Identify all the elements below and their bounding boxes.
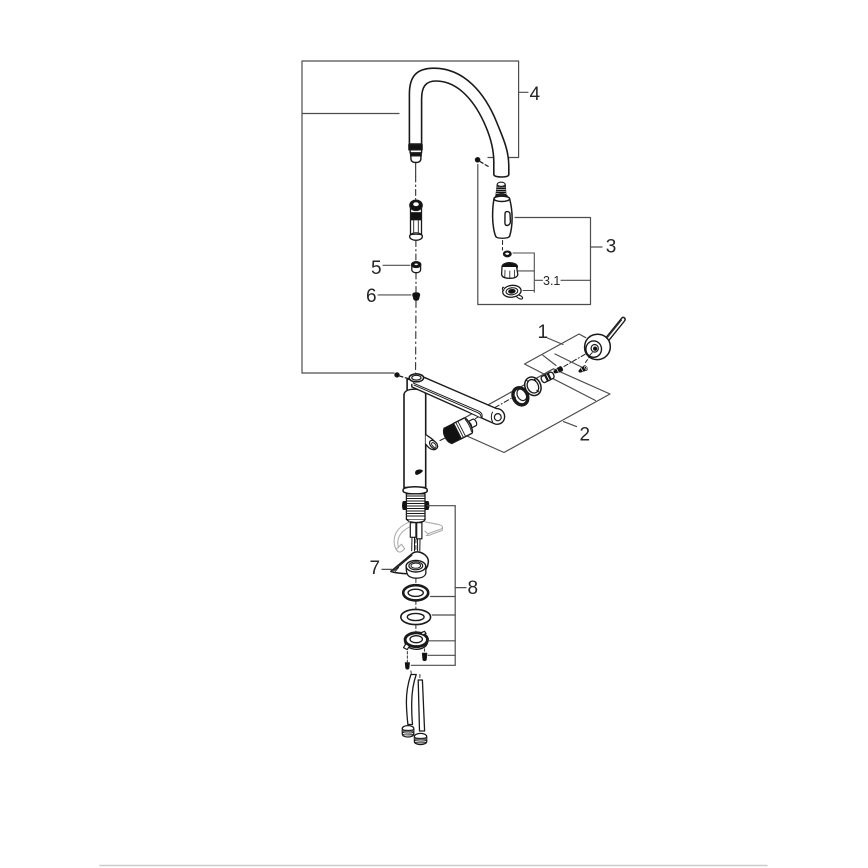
svg-text:8: 8 (468, 578, 479, 599)
svg-text:3.1: 3.1 (543, 274, 560, 288)
svg-text:4: 4 (530, 84, 541, 105)
svg-text:5: 5 (371, 258, 382, 279)
svg-text:2: 2 (580, 425, 591, 446)
svg-text:6: 6 (366, 286, 377, 307)
svg-text:7: 7 (370, 558, 381, 579)
svg-text:3: 3 (606, 237, 617, 258)
svg-text:1: 1 (538, 322, 549, 343)
